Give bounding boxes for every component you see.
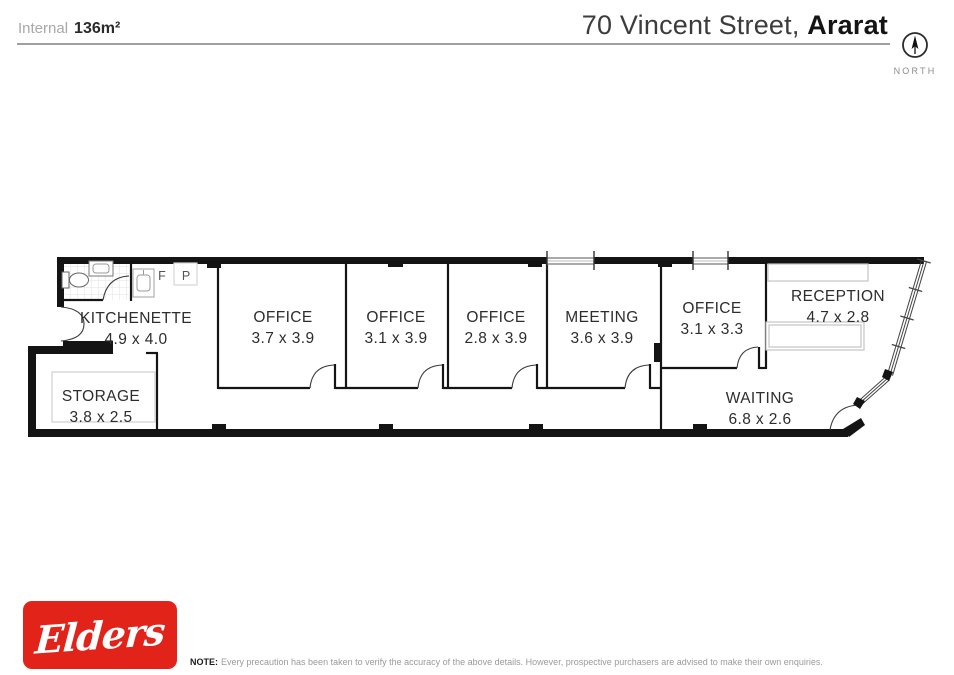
room-label-office-3: OFFICE [466,309,525,326]
floor-plan: F P KITCHENETTE 4.9 x 4.0 STORAGE 3.8 x … [0,0,954,675]
room-dims-storage: 3.8 x 2.5 [69,409,132,426]
elders-logo: Elders [23,601,177,669]
toilet-icon [62,272,89,288]
room-label-office-2: OFFICE [366,309,425,326]
basin-icon [89,261,113,276]
room-label-reception: RECEPTION [791,288,885,305]
room-label-office-1: OFFICE [253,309,312,326]
kitchen-sink-icon [133,269,154,297]
room-label-office-4: OFFICE [682,300,741,317]
room-dims-office-3: 2.8 x 3.9 [464,330,527,347]
reception-counters [766,264,868,350]
room-dims-office-1: 3.7 x 3.9 [251,330,314,347]
floorplan-page: Internal136m² 70 Vincent Street, Ararat … [0,0,954,675]
room-label-storage: STORAGE [62,388,140,405]
room-dims-kitchenette: 4.9 x 4.0 [104,331,167,348]
room-label-kitchenette: KITCHENETTE [80,310,192,327]
room-dims-waiting: 6.8 x 2.6 [728,411,791,428]
room-dims-reception: 4.7 x 2.8 [806,309,869,326]
elders-logo-text: Elders [34,608,166,662]
room-dims-office-2: 3.1 x 3.9 [364,330,427,347]
note-label: NOTE: [190,657,218,667]
room-label-meeting: MEETING [565,309,638,326]
room-labels: KITCHENETTE 4.9 x 4.0 STORAGE 3.8 x 2.5 … [62,288,885,428]
fridge-label: F [158,269,166,283]
note-text: Every precaution has been taken to verif… [221,657,823,667]
room-dims-meeting: 3.6 x 3.9 [570,330,633,347]
room-label-waiting: WAITING [726,390,795,407]
room-dims-office-4: 3.1 x 3.3 [680,321,743,338]
disclaimer-note: NOTE:Every precaution has been taken to … [190,657,890,667]
pantry-label: P [182,269,190,283]
